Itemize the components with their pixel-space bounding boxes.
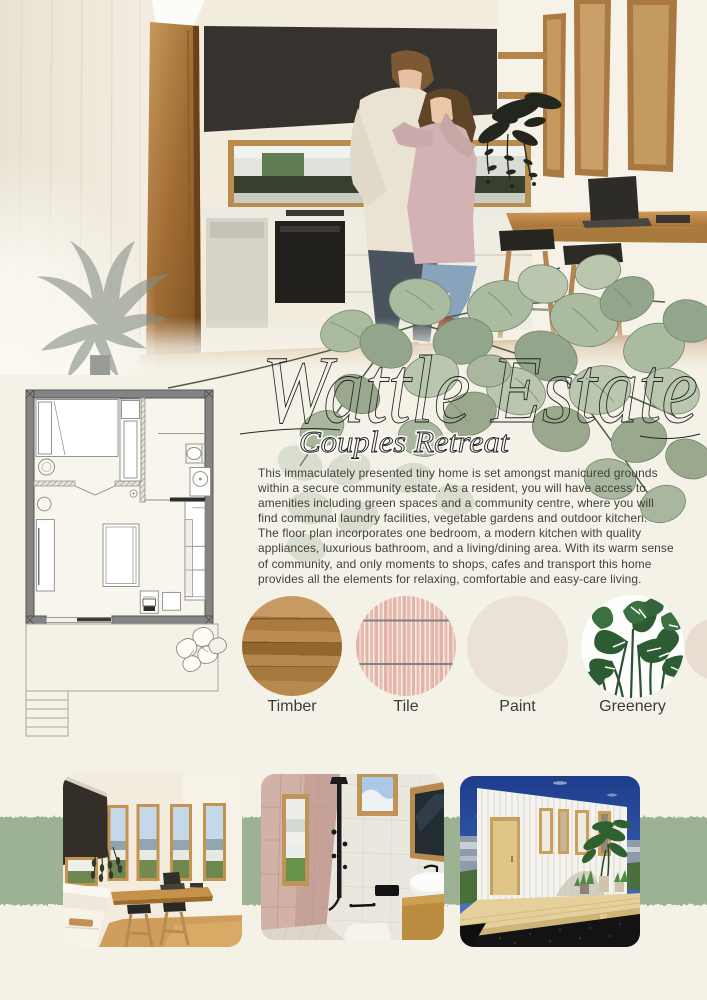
svg-text:Couples Retreat: Couples Retreat <box>299 424 510 459</box>
